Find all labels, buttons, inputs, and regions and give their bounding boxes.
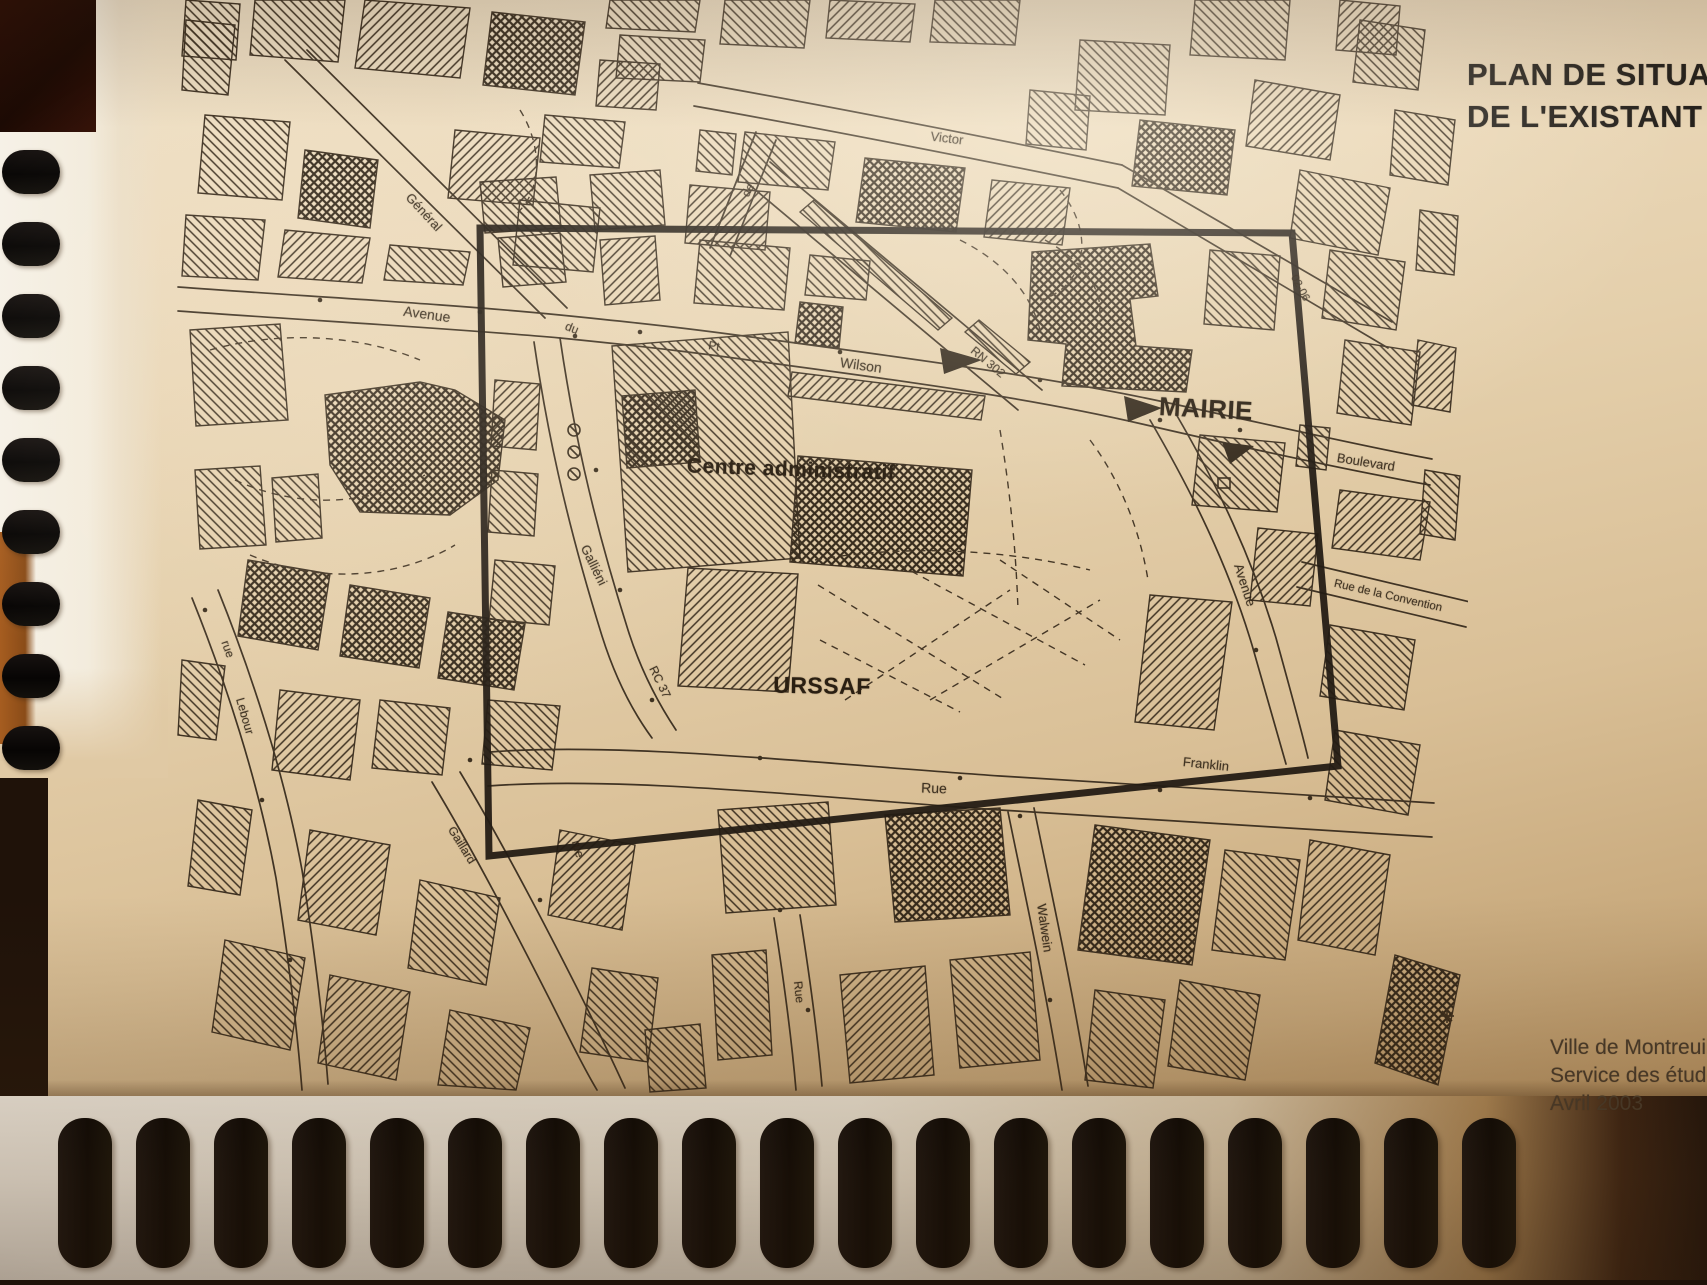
map-title-line1: PLAN DE SITUATI bbox=[1467, 54, 1707, 96]
credits-block: Ville de Montreuil Service des études Av… bbox=[1550, 1034, 1707, 1118]
city-map-area bbox=[0, 0, 1707, 1280]
map-title-line2: DE L'EXISTANT bbox=[1467, 96, 1707, 138]
credit-line-3: Avril 2003 bbox=[1550, 1090, 1707, 1118]
map-title: PLAN DE SITUATI DE L'EXISTANT bbox=[1467, 54, 1707, 138]
credit-line-1: Ville de Montreuil bbox=[1550, 1034, 1707, 1062]
map-linework bbox=[178, 0, 1470, 1092]
building-blocks bbox=[178, 0, 1460, 1092]
booklet-photo: { "page_title": { "line1": "PLAN DE SITU… bbox=[0, 0, 1707, 1280]
city-map bbox=[0, 0, 1707, 1280]
credit-line-2: Service des études bbox=[1550, 1062, 1707, 1090]
